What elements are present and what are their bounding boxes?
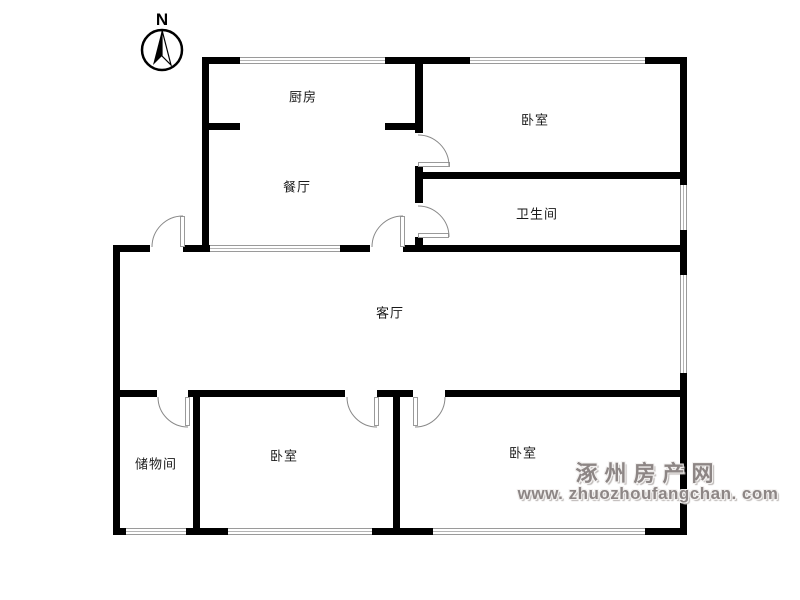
room-label-bedroom-right: 卧室 <box>509 443 537 462</box>
door-arc <box>415 397 445 427</box>
room-label-bathroom: 卫生间 <box>516 204 558 223</box>
room-label-living: 客厅 <box>376 303 404 322</box>
room-label-dining: 餐厅 <box>283 177 311 196</box>
door-arc <box>158 397 188 427</box>
room-label-kitchen: 厨房 <box>289 87 317 106</box>
watermark-site-url: www. zhuozhoufangchan. com <box>518 484 779 504</box>
room-label-bedroom-left: 卧室 <box>270 446 298 465</box>
door-arc <box>418 206 449 237</box>
door-arc <box>372 216 403 247</box>
door-arcs <box>0 0 800 600</box>
door-arc <box>418 135 449 166</box>
door-arc <box>347 397 377 427</box>
room-label-storage: 储物间 <box>135 454 177 473</box>
door-arc <box>152 216 183 247</box>
floor-plan: N <box>0 0 800 600</box>
room-label-bedroom-top: 卧室 <box>521 110 549 129</box>
